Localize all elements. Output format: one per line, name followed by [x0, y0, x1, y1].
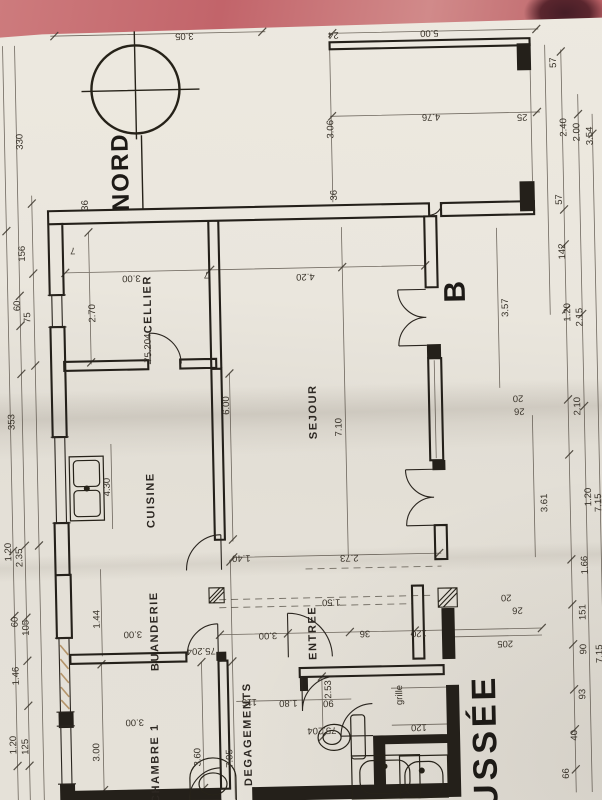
- dim-label: 151: [577, 604, 588, 620]
- dim-label: 7.10: [333, 418, 344, 437]
- dim-label: grille: [394, 685, 405, 705]
- dim-label: 36: [80, 200, 91, 211]
- dim-label: 7.05: [224, 749, 235, 768]
- dim-label: 36: [329, 190, 340, 201]
- dim-label: 142: [557, 243, 568, 259]
- dim-label: 20: [501, 592, 512, 603]
- dim-label: 156: [17, 246, 28, 262]
- dim-label: 120: [411, 721, 427, 732]
- dim-label: 3.61: [539, 494, 550, 513]
- dim-label: 2.70: [87, 304, 98, 323]
- floor-title-label: CHAUSSÉE: [465, 673, 508, 800]
- dim-label: 60: [9, 617, 20, 628]
- room-label-entree: ENTREE: [306, 606, 319, 660]
- dim-label: 75: [22, 312, 33, 323]
- dim-label: 2.73: [340, 552, 359, 563]
- dim-label: 1.46: [11, 667, 22, 686]
- dim-label: 2.40: [558, 118, 569, 137]
- dim-label: 1.80: [279, 697, 298, 708]
- dim-label: 3.00: [91, 743, 102, 762]
- room-label-cuisine: CUISINE: [144, 472, 157, 528]
- dim-label: 2.53: [323, 680, 334, 699]
- dim-label: 66: [561, 768, 572, 779]
- dimension-labels: 3.05245.004.76253.0636363.00774.202.706.…: [0, 22, 602, 791]
- dim-label: 4.76: [422, 111, 441, 122]
- compass-icon: [80, 30, 202, 210]
- dim-label: 115: [242, 696, 257, 707]
- dim-label: 2.00: [571, 123, 582, 142]
- dim-label: 7: [70, 245, 76, 256]
- dim-label: 75.204: [143, 334, 155, 363]
- dim-label: 120: [411, 627, 427, 638]
- dim-label: 26: [514, 405, 525, 416]
- kitchen-sink-icon: [69, 456, 104, 521]
- dim-label: 7.15: [593, 493, 602, 512]
- dim-label: 3.06: [325, 120, 336, 139]
- north-label: NORD: [106, 132, 135, 211]
- dim-label: 1.20: [3, 543, 14, 562]
- door-arc: [147, 202, 454, 800]
- room-label-buanderie: BUANDERIE: [148, 591, 162, 671]
- room-label-chambre-1: CHAMBRE 1: [149, 723, 163, 800]
- dim-label: 57: [554, 194, 565, 205]
- dim-label: 3.60: [192, 748, 203, 767]
- dim-label: 3.05: [175, 30, 194, 41]
- dim-label: 205: [497, 638, 513, 649]
- dim-label: 1.50: [322, 596, 341, 607]
- dim-label: 6.00: [221, 396, 232, 415]
- dim-label: 330: [14, 134, 25, 150]
- room-label-cellier: CELLIER: [141, 275, 154, 334]
- dim-label: 36: [359, 628, 370, 639]
- dim-label: 4.30: [102, 478, 113, 497]
- dim-label: 5.00: [420, 27, 439, 38]
- dim-label: 26: [512, 604, 523, 615]
- dim-label: 4.20: [296, 271, 315, 282]
- photo-of-floor-plan: { "scene": { "background": "pink-fabric"…: [0, 0, 602, 800]
- dim-label: 1.40: [232, 552, 251, 563]
- dim-label: 40: [569, 730, 580, 741]
- section-b-label: B: [439, 281, 472, 303]
- dim-label: 2.15: [574, 308, 585, 327]
- dim-label: 2.35: [14, 549, 25, 568]
- dim-label: 3.54: [584, 127, 595, 146]
- dim-label: 3.00: [259, 630, 278, 641]
- dim-label: 20: [513, 392, 524, 403]
- dim-label: 90: [578, 644, 589, 655]
- dim-label: 3.00: [122, 272, 141, 283]
- dim-label: 3.00: [124, 628, 143, 639]
- dim-label: 7.15: [594, 644, 602, 663]
- dim-label: 3.00: [125, 716, 144, 727]
- dim-label: 125: [20, 739, 31, 755]
- dim-label: 24: [328, 29, 339, 40]
- dim-label: 1.66: [579, 556, 590, 575]
- dim-label: 93: [577, 689, 588, 700]
- dim-label: 75.204: [187, 645, 216, 657]
- dim-label: 90: [323, 697, 334, 708]
- dim-label: 25: [517, 111, 528, 122]
- dim-label: 75.204: [307, 724, 336, 736]
- dim-label: 105: [21, 620, 32, 636]
- dim-label: 353: [6, 414, 17, 430]
- room-label-sejour: SEJOUR: [307, 384, 320, 439]
- window-hatch: [60, 645, 69, 709]
- dim-label: 60: [12, 301, 23, 312]
- dim-label: 7: [204, 269, 210, 280]
- toilet-icon: [318, 715, 366, 760]
- dim-label: 2.10: [572, 397, 583, 416]
- dim-label: 1.44: [91, 610, 102, 629]
- dim-label: 1.20: [562, 303, 573, 322]
- dim-label: 3.57: [500, 298, 511, 317]
- dim-label: 57: [548, 57, 559, 68]
- dim-label: 1.20: [8, 736, 19, 755]
- floor-plan-svg: NORD B CHAUSSÉE CELLIER CUISINE SEJOUR B…: [0, 0, 602, 800]
